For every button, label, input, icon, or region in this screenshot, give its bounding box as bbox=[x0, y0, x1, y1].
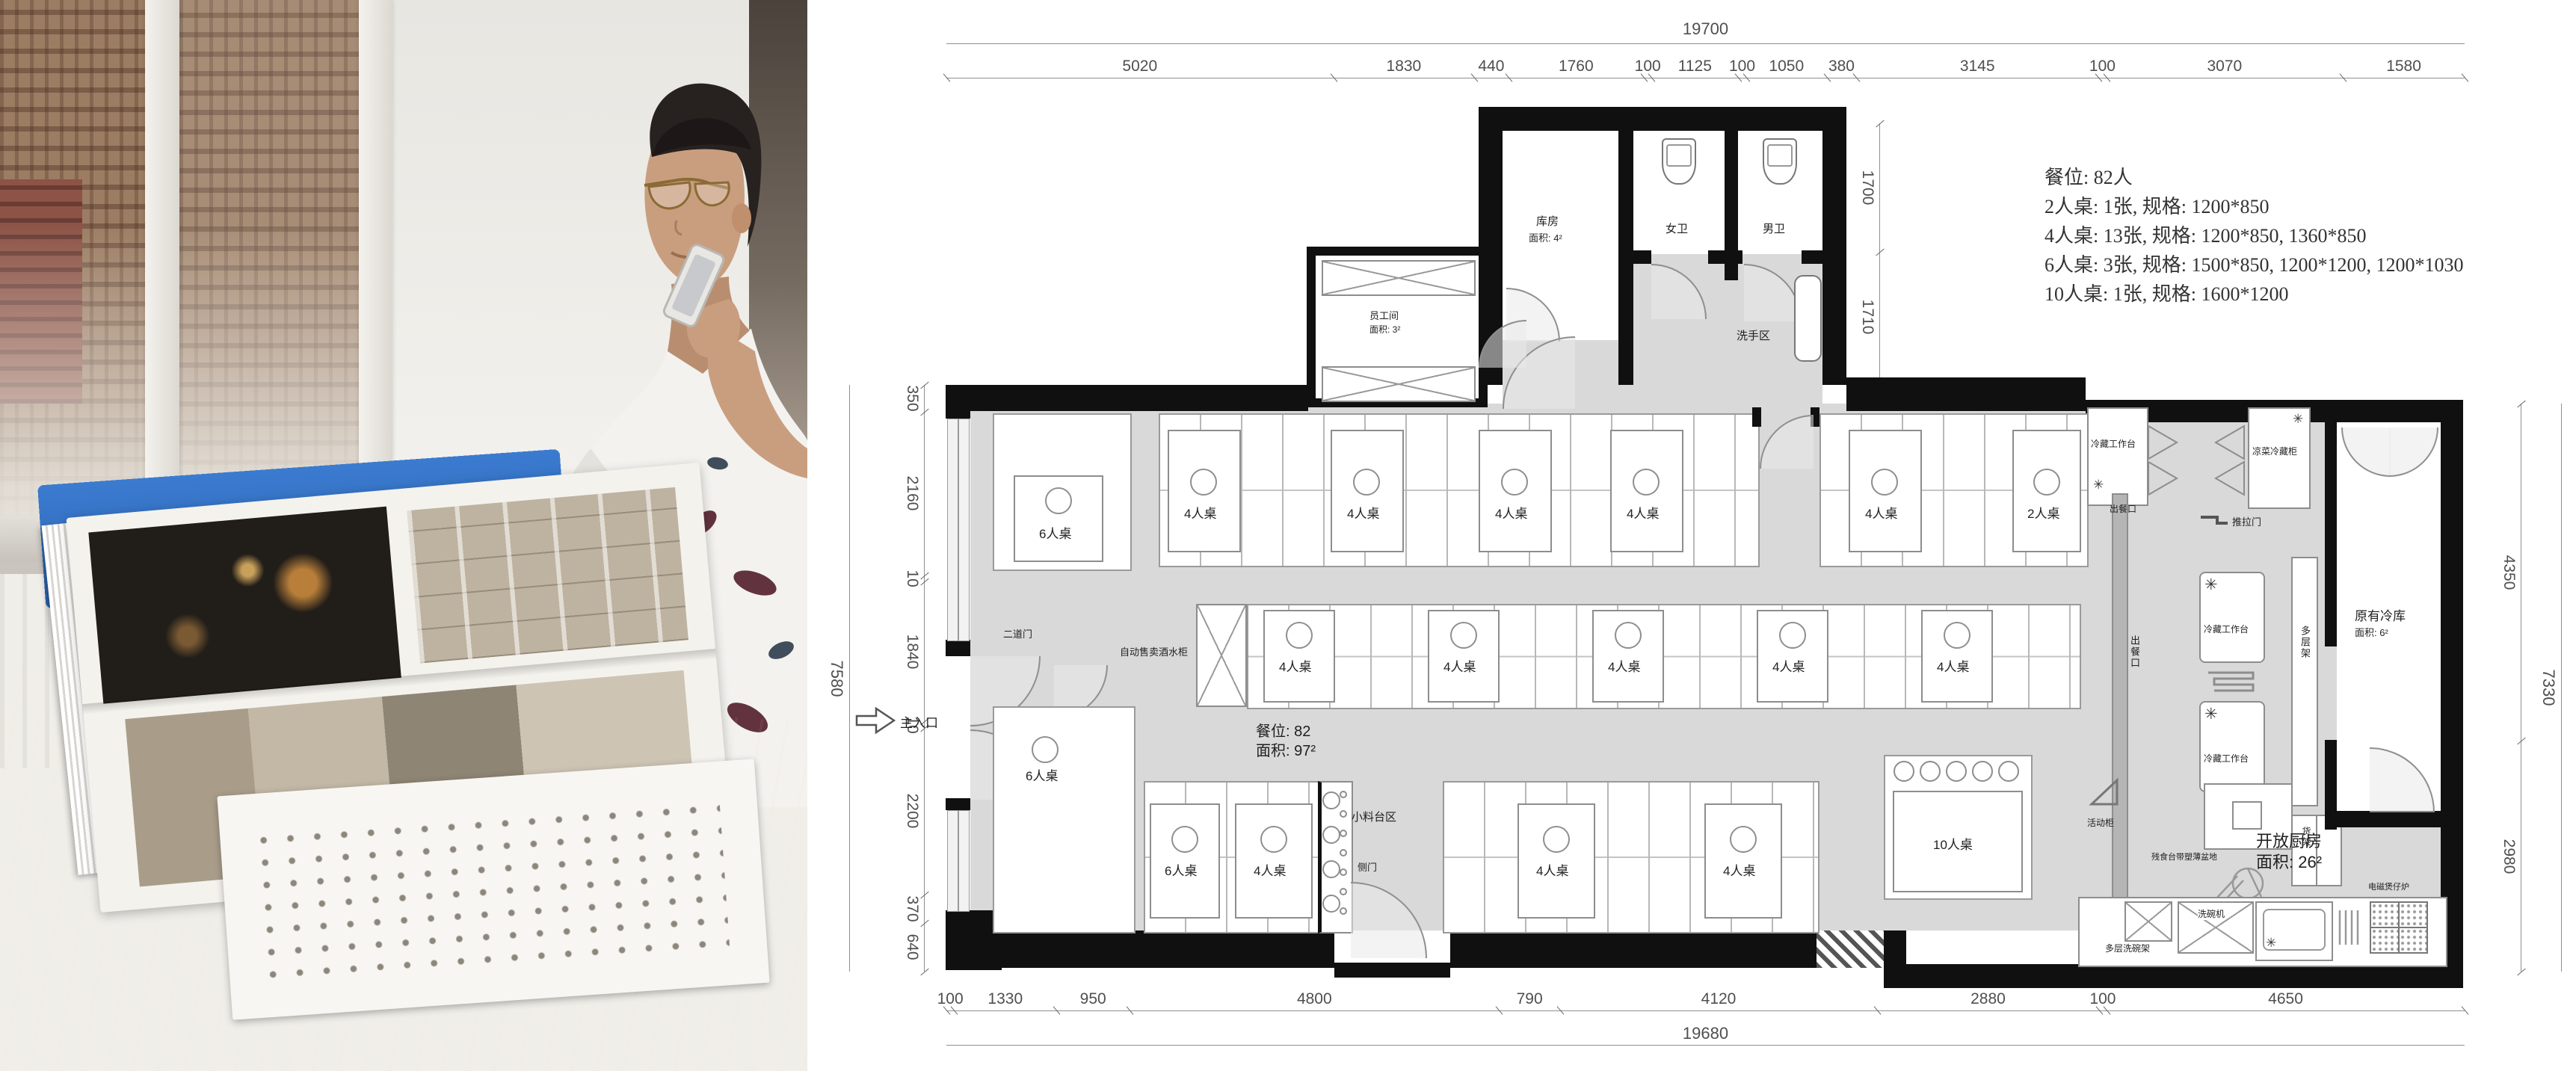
dining-seats-label: 餐位: 82 bbox=[1256, 719, 1310, 741]
cold-work-table-top: 冷藏工作台 ✳ bbox=[2087, 407, 2148, 506]
dim-bottom-total: 19680 bbox=[946, 1015, 2465, 1046]
room-staff-area: 面积: 3² bbox=[1369, 323, 1400, 336]
room-storage-area: 面积: 4² bbox=[1529, 230, 1562, 244]
fridge-door-swings bbox=[2147, 425, 2178, 496]
beverage-cabinet-label: 自动售卖酒水柜 bbox=[1120, 644, 1188, 658]
beverage-cabinet bbox=[1196, 604, 1247, 707]
dim-right-upper-chain: 1700 1710 bbox=[1854, 123, 1880, 381]
room-wc-women-label: 女卫 bbox=[1666, 220, 1688, 236]
room-storage-label: 库房 bbox=[1536, 213, 1559, 229]
snowflake-icon: ✳ bbox=[2204, 705, 2218, 723]
dim-seg: 10 bbox=[897, 575, 924, 581]
cold-work-table-label: 冷藏工作台 bbox=[2091, 437, 2136, 450]
cold-dish-cabinet-label: 凉菜冷藏柜 bbox=[2252, 445, 2297, 457]
table-10p: 10人桌 bbox=[1893, 791, 2023, 892]
wash-sink bbox=[1794, 275, 1822, 362]
sliding-door-icon bbox=[2199, 511, 2229, 531]
dim-seg: 1580 bbox=[2343, 46, 2465, 78]
wall-right bbox=[2441, 400, 2463, 968]
dim-seg: 1125 bbox=[1651, 46, 1738, 78]
dim-seg: 4120 bbox=[1560, 981, 1877, 1010]
cold-storage-label: 原有冷库 bbox=[2355, 605, 2406, 624]
cold-work-unit-2: ✳ 冷藏工作台 bbox=[2199, 701, 2265, 792]
dim-seg: 100 bbox=[946, 981, 954, 1010]
dim-seg: 2160 bbox=[897, 412, 924, 576]
dim-seg: 950 bbox=[1056, 981, 1130, 1010]
snowflake-icon: ✳ bbox=[2093, 478, 2104, 493]
wall-top-mid bbox=[1846, 377, 2086, 411]
cold-work-unit-label: 冷藏工作台 bbox=[2204, 623, 2249, 635]
dim-seg: 3070 bbox=[2107, 46, 2344, 78]
claypot-stove-label: 电磁煲仔炉 bbox=[2368, 880, 2409, 892]
dim-seg: 790 bbox=[1499, 981, 1559, 1010]
dim-seg: 2200 bbox=[897, 728, 924, 895]
dim-seg: 4800 bbox=[1130, 981, 1499, 1010]
plan-notes: 餐位: 82人 2人桌: 1张, 规格: 1200*850 4人桌: 13张, … bbox=[2045, 163, 2463, 309]
dim-seg: 1830 bbox=[1334, 46, 1475, 78]
snowflake-icon: ✳ bbox=[2266, 936, 2276, 951]
side-door-label: 侧门 bbox=[1358, 859, 1377, 874]
claypot-stove bbox=[2370, 901, 2428, 954]
dim-seg: 1700 bbox=[1854, 123, 1879, 252]
table-4p: 4人桌 bbox=[1757, 610, 1828, 703]
dim-left-total: 7580 bbox=[822, 385, 850, 972]
dim-top-chain: 5020 1830 440 1760 100 1125 100 1050 380… bbox=[946, 46, 2465, 78]
table-4p: 4人桌 bbox=[1263, 610, 1335, 703]
fridge-door-swings bbox=[2214, 425, 2246, 496]
coil-icon bbox=[2202, 667, 2259, 697]
table-4p: 4人桌 bbox=[1849, 430, 1922, 552]
kitchen-sink: ✳ bbox=[2255, 901, 2333, 961]
note-line: 10人桌: 1张, 规格: 1600*1200 bbox=[2045, 280, 2463, 309]
staff-cabinet-top bbox=[1322, 260, 1476, 296]
note-line: 2人桌: 1张, 规格: 1200*850 bbox=[2045, 192, 2463, 221]
cold-work-unit-1: ✳ 冷藏工作台 bbox=[2199, 572, 2265, 663]
serving-window-label-v: 出餐口 bbox=[2127, 635, 2142, 770]
dim-seg: 640 bbox=[897, 923, 924, 972]
wall-wc-right bbox=[1822, 107, 1846, 385]
condiment-counter bbox=[1318, 781, 1353, 933]
table-10p-zone: 10人桌 bbox=[1884, 755, 2033, 900]
dim-bottom-total-value: 19680 bbox=[1683, 1024, 1728, 1043]
table-4p: 4人桌 bbox=[1235, 803, 1313, 919]
condiment-label: 小料台区 bbox=[1352, 809, 1396, 824]
dim-seg: 380 bbox=[1827, 46, 1856, 78]
dim-right-total: 7330 bbox=[2534, 404, 2562, 972]
ramp-hatch bbox=[1817, 930, 1884, 968]
wall-top-left bbox=[946, 385, 1308, 411]
wall-coldstore-left bbox=[2325, 422, 2337, 646]
table-4p: 4人桌 bbox=[1921, 610, 1993, 703]
serving-counter-wall bbox=[2112, 493, 2128, 900]
table-4p: 4人桌 bbox=[1517, 803, 1595, 919]
dining-area-label: 面积: 97² bbox=[1256, 738, 1316, 760]
table-6p-lower-label: 6人桌 bbox=[1026, 765, 1058, 784]
wc-door-post bbox=[1802, 250, 1822, 264]
coil-icon bbox=[2334, 906, 2364, 951]
note-line: 4人桌: 13张, 规格: 1200*850, 1360*850 bbox=[2045, 221, 2463, 250]
dim-seg: 4350 bbox=[2495, 404, 2521, 741]
dim-left-chain: 350 2160 10 1840 10 2200 370 640 bbox=[897, 385, 925, 972]
door-post bbox=[1752, 407, 1761, 427]
wall-wc-top bbox=[1479, 107, 1846, 131]
dim-right-chain: 4350 2980 bbox=[2495, 404, 2521, 972]
dish-rack bbox=[2124, 901, 2172, 942]
inner-door-label: 二道门 bbox=[1003, 626, 1032, 641]
window-left-upper bbox=[947, 419, 970, 641]
multi-shelf: 多层架 bbox=[2291, 557, 2318, 806]
entry-label: 主入口 bbox=[900, 712, 938, 731]
screenshot-root: 餐位: 82人 2人桌: 1张, 规格: 1200*850 4人桌: 13张, … bbox=[0, 0, 2576, 1071]
table-4p: 4人桌 bbox=[1168, 430, 1241, 552]
toilet-icon bbox=[1662, 138, 1696, 185]
stool-icons bbox=[1885, 756, 2027, 786]
multi-shelf-label: 多层架 bbox=[2298, 626, 2312, 659]
wc-door-post bbox=[1633, 250, 1651, 264]
dim-seg: 1050 bbox=[1746, 46, 1827, 78]
mobile-cabinet-icon bbox=[2087, 776, 2124, 810]
dim-seg: 5020 bbox=[946, 46, 1334, 78]
entry-arrow-icon bbox=[855, 706, 896, 735]
dim-seg: 3145 bbox=[1856, 46, 2098, 78]
dim-seg: 1760 bbox=[1509, 46, 1644, 78]
window-left-lower bbox=[947, 810, 970, 912]
wall-storage-divider bbox=[1618, 131, 1633, 385]
wall-bottom-left bbox=[946, 930, 1334, 968]
snowflake-icon: ✳ bbox=[2204, 575, 2218, 594]
toilet-icon bbox=[1763, 138, 1797, 185]
dim-seg: 1330 bbox=[954, 981, 1056, 1010]
wall-coldstore-bottom bbox=[2325, 811, 2441, 827]
booth-6p-lower bbox=[993, 706, 1136, 933]
catalog-swatch-grid-1 bbox=[407, 487, 688, 664]
dim-seg: 100 bbox=[1738, 46, 1745, 78]
dim-seg: 100 bbox=[2098, 46, 2106, 78]
table-4p: 4人桌 bbox=[1610, 430, 1683, 552]
wall-left-seg bbox=[946, 640, 970, 656]
dim-seg: 2980 bbox=[2495, 741, 2521, 972]
table-6p-upper: 6人桌 bbox=[1014, 475, 1103, 562]
table-4p: 4人桌 bbox=[1428, 610, 1500, 703]
snowflake-icon: ✳ bbox=[2293, 412, 2303, 427]
floor-plan: 餐位: 82人 2人桌: 1张, 规格: 1200*850 4人桌: 13张, … bbox=[807, 0, 2576, 1071]
mobile-cabinet-label: 活动柜 bbox=[2087, 816, 2114, 829]
dim-top-total: 19700 bbox=[946, 19, 2465, 44]
note-line: 餐位: 82人 bbox=[2045, 163, 2463, 192]
table-4p: 4人桌 bbox=[1704, 803, 1782, 919]
serving-window-label-h: 出餐口 bbox=[2110, 502, 2136, 515]
dim-seg: 100 bbox=[1644, 46, 1651, 78]
table-2p: 2人桌 bbox=[2012, 430, 2081, 552]
wc-door-post bbox=[1708, 250, 1743, 264]
staff-cabinet-bottom bbox=[1322, 366, 1476, 402]
dim-left-total-value: 7580 bbox=[827, 660, 846, 697]
dim-seg: 350 bbox=[897, 385, 924, 412]
cold-work-unit-label: 冷藏工作台 bbox=[2204, 752, 2249, 765]
dim-top-total-value: 19700 bbox=[1683, 19, 1728, 38]
dim-seg: 1710 bbox=[1854, 252, 1879, 381]
dim-seg: 440 bbox=[1474, 46, 1508, 78]
wall-left-seg bbox=[946, 385, 970, 419]
sample-sheet-dots bbox=[257, 803, 730, 984]
dim-seg: 1840 bbox=[897, 581, 924, 721]
sample-sheet bbox=[217, 759, 769, 1019]
dishwasher-label: 洗碗机 bbox=[2198, 907, 2225, 920]
room-staff-label: 员工间 bbox=[1369, 308, 1399, 322]
wall-bottom-right bbox=[1884, 964, 2463, 988]
sliding-door-label: 推拉门 bbox=[2232, 514, 2261, 528]
cold-storage-area: 面积: 6² bbox=[2355, 625, 2388, 639]
catalog-photo-page bbox=[88, 507, 401, 704]
wall-bottom-recess bbox=[1334, 963, 1450, 978]
cold-dish-cabinet: ✳ 凉菜冷藏柜 bbox=[2248, 407, 2311, 509]
chair-icon bbox=[1032, 736, 1059, 763]
table-6p: 6人桌 bbox=[1150, 803, 1220, 919]
table-4p: 4人桌 bbox=[1479, 430, 1552, 552]
dish-rack-label: 多层洗碗架 bbox=[2105, 942, 2150, 954]
wall-left-seg bbox=[946, 798, 970, 810]
photo-panel bbox=[0, 0, 807, 1071]
room-wc-men-label: 男卫 bbox=[1763, 220, 1785, 236]
wall-step bbox=[1884, 930, 1906, 988]
table-4p: 4人桌 bbox=[1592, 610, 1664, 703]
dim-right-total-value: 7330 bbox=[2539, 670, 2558, 706]
dim-seg: 370 bbox=[897, 895, 924, 923]
wash-area-label: 洗手区 bbox=[1737, 327, 1770, 343]
waste-table-label: 残食台带塑薄盆地 bbox=[2151, 851, 2217, 862]
table-4p: 4人桌 bbox=[1331, 430, 1404, 552]
note-line: 6人桌: 3张, 规格: 1500*850, 1200*1200, 1200*1… bbox=[2045, 250, 2463, 280]
